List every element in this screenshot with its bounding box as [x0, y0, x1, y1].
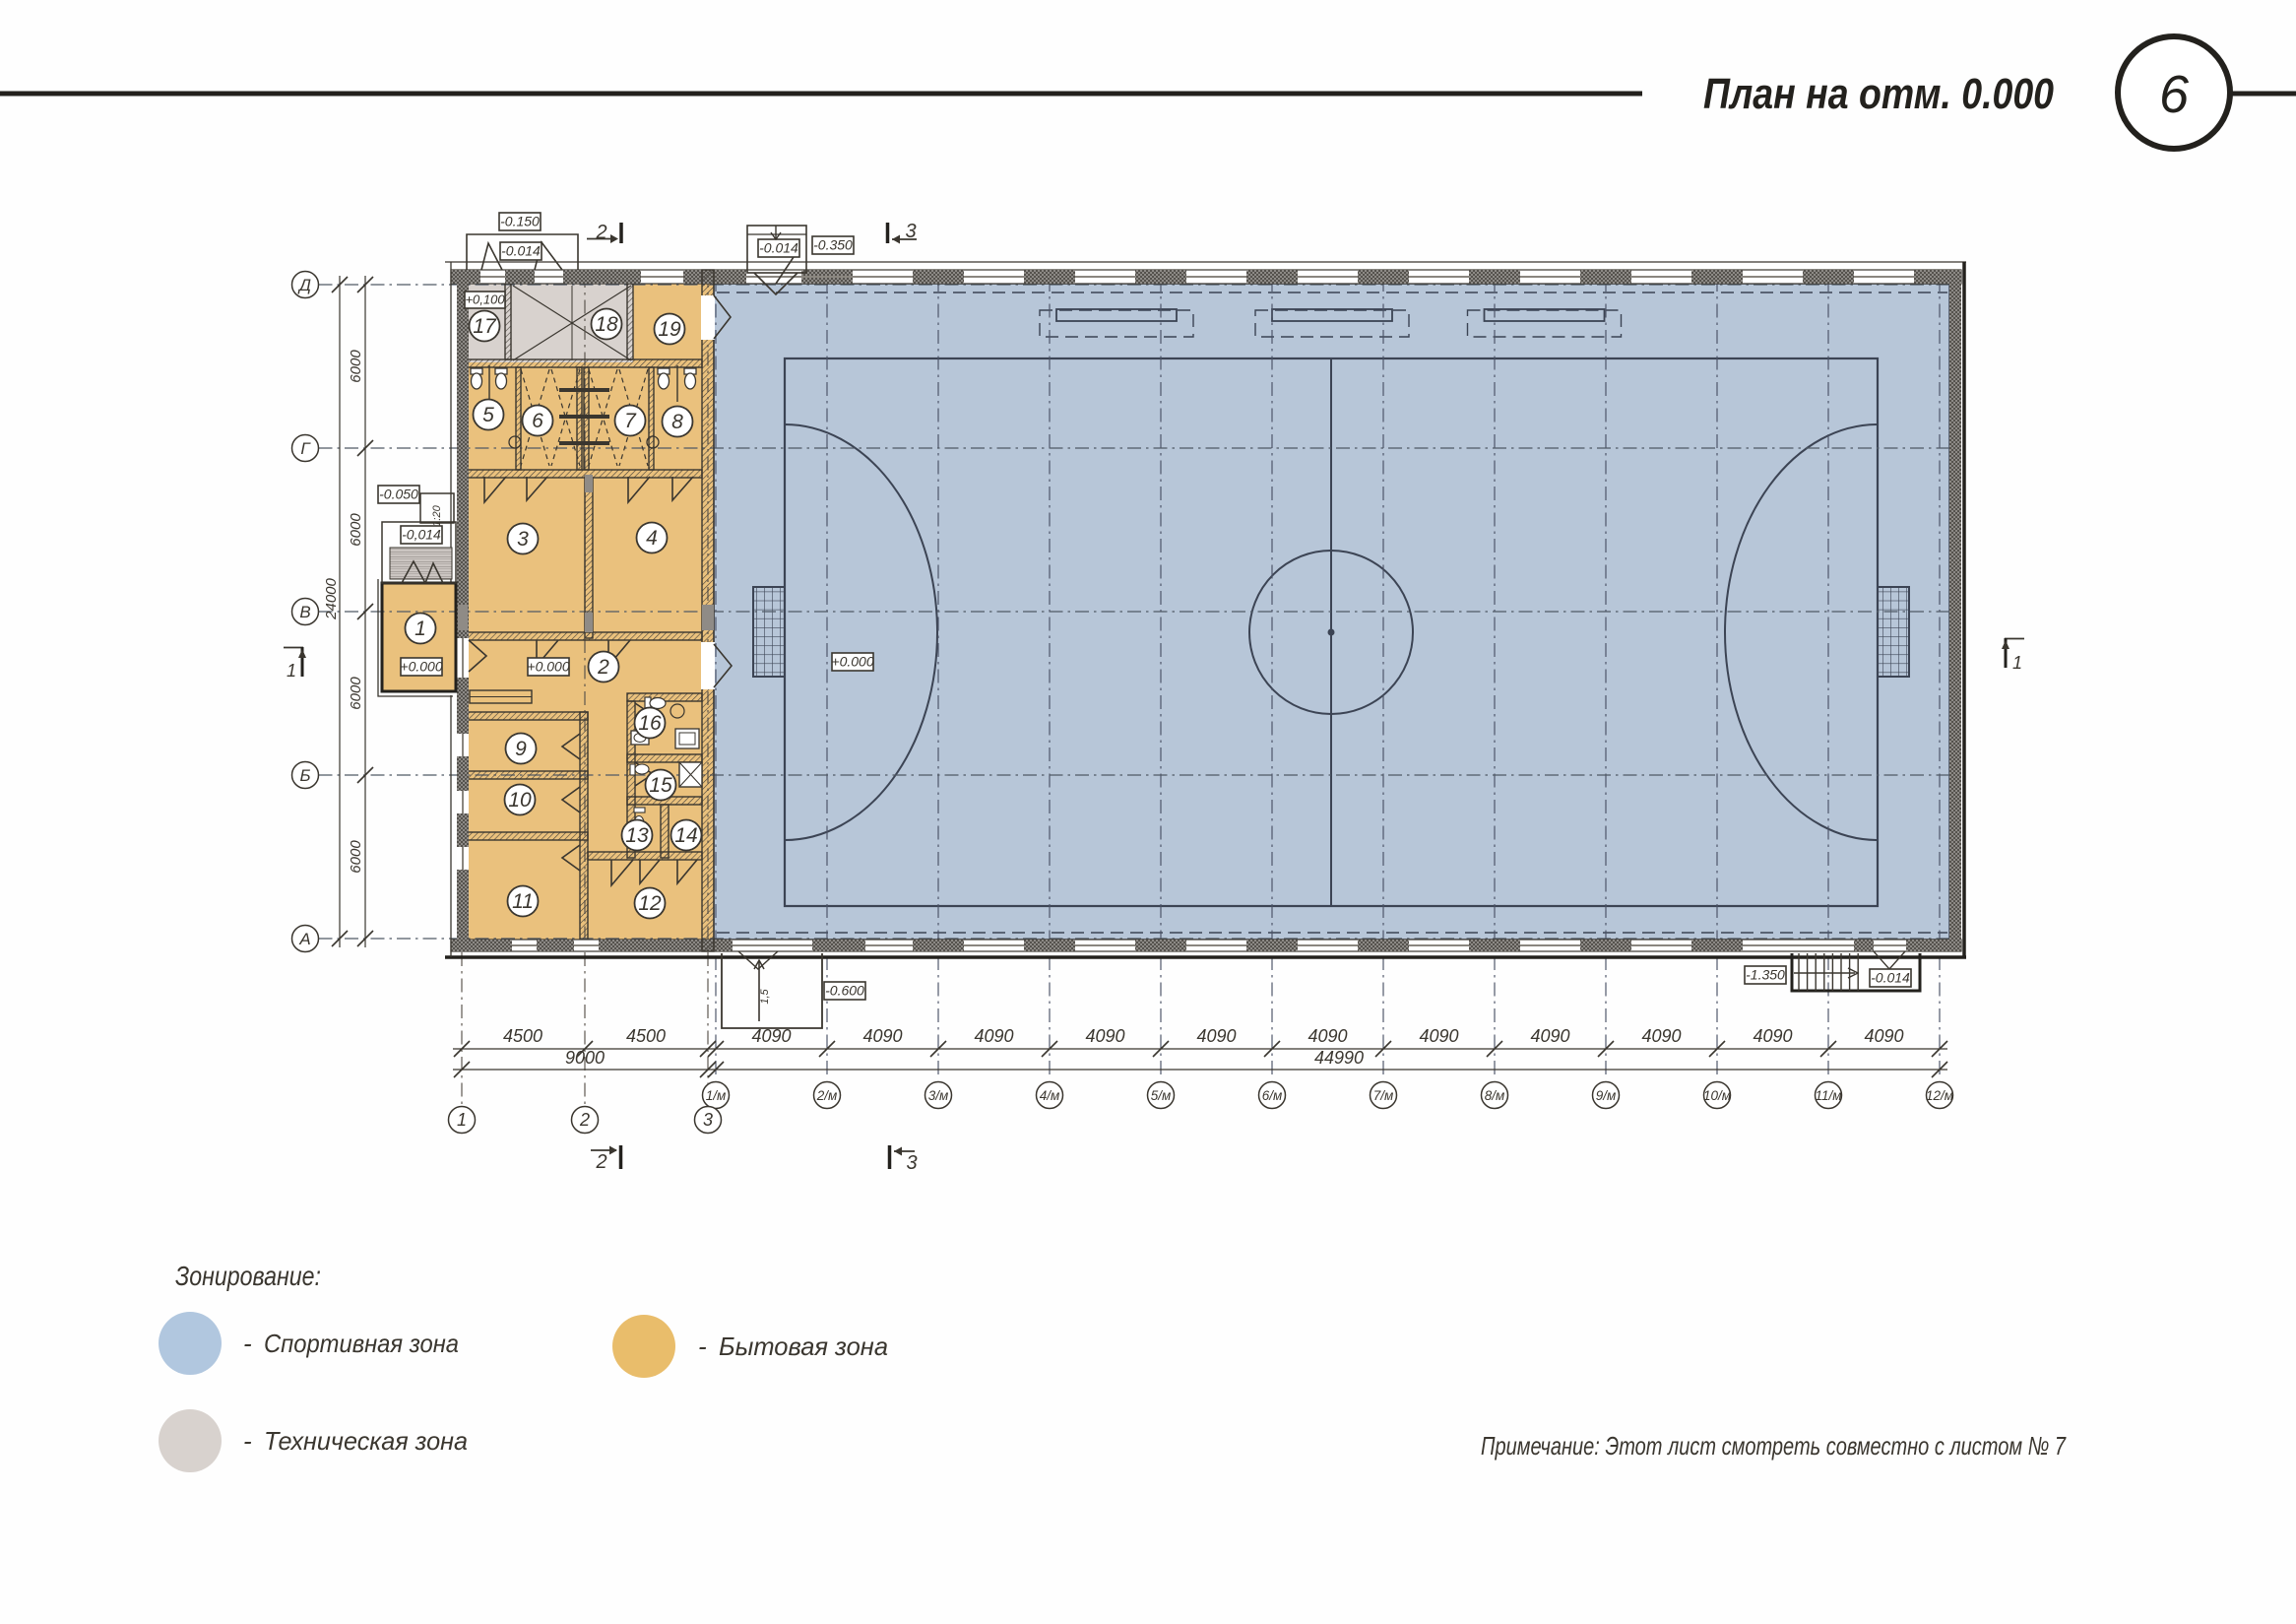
svg-text:15: 15: [649, 774, 672, 797]
svg-text:4/м: 4/м: [1040, 1088, 1060, 1103]
svg-text:6/м: 6/м: [1262, 1088, 1283, 1103]
svg-text:3: 3: [906, 1152, 917, 1174]
svg-text:4: 4: [646, 527, 658, 550]
svg-text:+0.000: +0.000: [831, 654, 873, 670]
svg-text:Зонирование:: Зонирование:: [175, 1261, 321, 1291]
svg-text:-0.050: -0.050: [379, 487, 418, 502]
svg-text:4090: 4090: [1307, 1026, 1347, 1046]
svg-text:5/м: 5/м: [1151, 1088, 1172, 1103]
svg-text:11: 11: [512, 890, 534, 913]
svg-text:17: 17: [473, 315, 497, 338]
svg-text:-1.350: -1.350: [1746, 967, 1785, 983]
svg-text:9000: 9000: [565, 1048, 605, 1068]
svg-text:-0,014: -0,014: [402, 527, 441, 543]
svg-text:-0.350: -0.350: [813, 237, 853, 253]
svg-text:4090: 4090: [1753, 1026, 1792, 1046]
svg-text:6000: 6000: [348, 840, 364, 874]
svg-text:Спортивная зона: Спортивная зона: [264, 1329, 459, 1358]
svg-text:8: 8: [671, 411, 683, 433]
svg-text:2/м: 2/м: [816, 1088, 838, 1103]
svg-text:А: А: [298, 930, 310, 948]
svg-text:-: -: [243, 1329, 252, 1358]
svg-text:3/м: 3/м: [928, 1088, 949, 1103]
svg-text:6: 6: [532, 410, 543, 432]
svg-text:1/м: 1/м: [706, 1088, 727, 1103]
svg-text:12/м: 12/м: [1926, 1088, 1953, 1103]
svg-text:9: 9: [515, 738, 527, 760]
svg-text:6: 6: [2159, 65, 2190, 124]
svg-text:-0.014: -0.014: [1871, 970, 1910, 986]
svg-text:Примечание: Этот лист смотреть: Примечание: Этот лист смотреть совместно…: [1481, 1431, 2067, 1461]
svg-text:6000: 6000: [348, 513, 364, 547]
svg-text:4090: 4090: [1419, 1026, 1458, 1046]
svg-text:14: 14: [674, 824, 697, 847]
svg-text:1: 1: [2012, 653, 2022, 673]
svg-text:4090: 4090: [751, 1026, 791, 1046]
svg-text:8/м: 8/м: [1485, 1088, 1505, 1103]
svg-text:10/м: 10/м: [1703, 1088, 1731, 1103]
svg-text:План на отм. 0.000: План на отм. 0.000: [1703, 70, 2054, 118]
svg-text:44990: 44990: [1314, 1048, 1364, 1068]
svg-text:1:20: 1:20: [431, 504, 443, 526]
svg-text:18: 18: [595, 313, 618, 336]
svg-text:12: 12: [638, 892, 662, 915]
svg-text:10: 10: [508, 789, 532, 812]
svg-text:1,5: 1,5: [759, 988, 771, 1004]
svg-text:2: 2: [597, 656, 609, 679]
svg-text:Б: Б: [299, 766, 310, 785]
svg-text:11/м: 11/м: [1815, 1088, 1841, 1103]
svg-text:4090: 4090: [1530, 1026, 1569, 1046]
svg-text:4090: 4090: [1196, 1026, 1236, 1046]
svg-text:2: 2: [579, 1110, 590, 1130]
svg-text:4090: 4090: [1864, 1026, 1903, 1046]
svg-text:3: 3: [703, 1110, 713, 1130]
svg-text:-0.014: -0.014: [501, 243, 541, 259]
svg-text:3: 3: [517, 528, 529, 551]
svg-text:4500: 4500: [626, 1026, 666, 1046]
svg-text:В: В: [299, 603, 310, 621]
svg-text:6000: 6000: [348, 350, 364, 383]
svg-text:Техническая зона: Техническая зона: [264, 1426, 468, 1456]
svg-text:+0.000: +0.000: [400, 659, 442, 675]
svg-text:-: -: [243, 1426, 252, 1456]
svg-text:+0.000: +0.000: [527, 659, 569, 675]
svg-text:13: 13: [625, 824, 649, 847]
svg-text:4090: 4090: [974, 1026, 1013, 1046]
svg-text:Бытовая зона: Бытовая зона: [719, 1332, 888, 1361]
svg-text:-0.600: -0.600: [825, 983, 864, 999]
svg-text:-0.150: -0.150: [500, 214, 540, 229]
svg-text:19: 19: [658, 318, 681, 341]
svg-text:+0,100: +0,100: [465, 292, 505, 307]
svg-text:4090: 4090: [1085, 1026, 1124, 1046]
svg-text:16: 16: [638, 712, 662, 735]
svg-text:-0.014: -0.014: [759, 240, 798, 256]
svg-text:7/м: 7/м: [1373, 1088, 1394, 1103]
svg-text:2: 2: [595, 1151, 606, 1173]
svg-text:7: 7: [624, 410, 637, 432]
svg-text:4500: 4500: [503, 1026, 542, 1046]
svg-text:1: 1: [415, 617, 426, 640]
svg-text:24000: 24000: [323, 577, 340, 619]
svg-text:9/м: 9/м: [1596, 1088, 1617, 1103]
svg-text:2: 2: [595, 222, 606, 243]
svg-text:5: 5: [482, 404, 494, 426]
svg-text:Д: Д: [297, 276, 311, 294]
svg-text:4090: 4090: [862, 1026, 902, 1046]
svg-text:3: 3: [905, 221, 916, 242]
svg-text:-: -: [698, 1332, 707, 1361]
svg-text:6000: 6000: [348, 677, 364, 710]
svg-text:1: 1: [457, 1110, 467, 1130]
svg-text:4090: 4090: [1641, 1026, 1681, 1046]
svg-text:1: 1: [287, 661, 296, 681]
